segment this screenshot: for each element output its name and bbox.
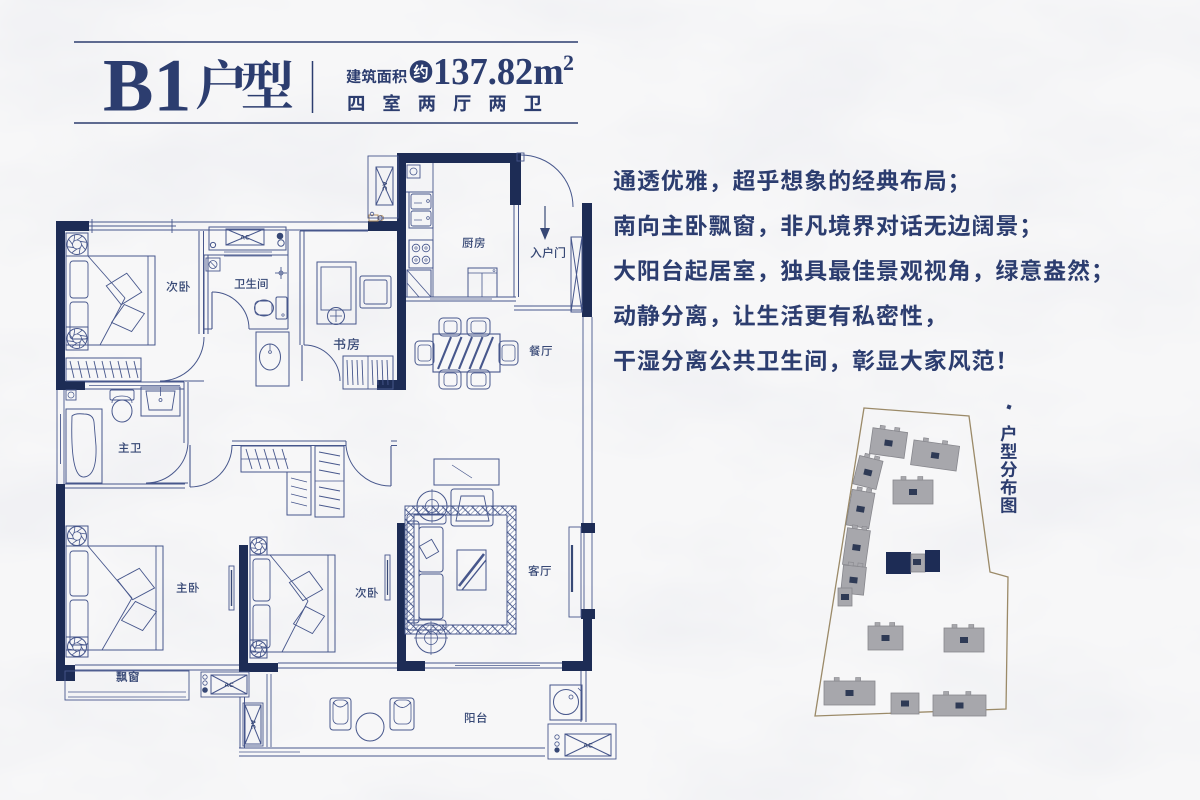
svg-text:137.82m: 137.82m bbox=[433, 51, 564, 93]
svg-text:AC: AC bbox=[224, 682, 234, 689]
svg-text:AC: AC bbox=[240, 234, 250, 241]
svg-text:AC: AC bbox=[381, 181, 388, 191]
svg-text:2: 2 bbox=[563, 50, 574, 75]
svg-text:AC: AC bbox=[583, 742, 593, 749]
svg-text:B1: B1 bbox=[103, 45, 191, 128]
svg-text:AC: AC bbox=[249, 720, 256, 730]
